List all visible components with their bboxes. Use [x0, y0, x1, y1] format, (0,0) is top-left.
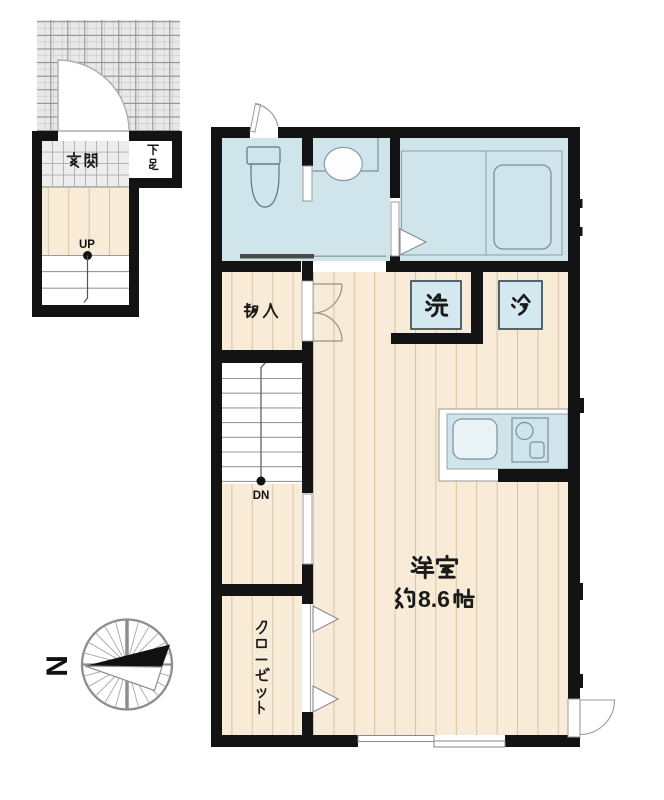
svg-text:N: N — [40, 655, 73, 677]
svg-text:DN: DN — [253, 490, 270, 502]
svg-text:8.6: 8.6 — [418, 586, 450, 612]
svg-text:UP: UP — [79, 239, 95, 251]
